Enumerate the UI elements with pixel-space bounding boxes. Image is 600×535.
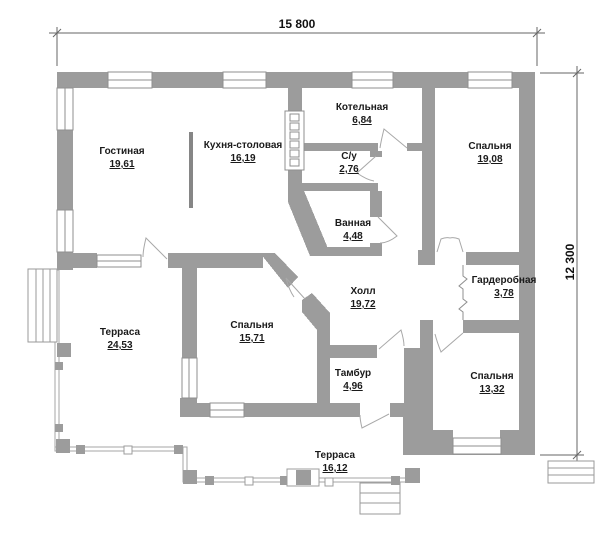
room-label-bedroom-3: Спальня 13,32	[470, 370, 513, 396]
room-label-bedroom-2: Спальня 15,71	[230, 319, 273, 345]
dimension-width-label: 15 800	[279, 17, 316, 31]
room-label-kitchen-dining: Кухня-столовая 16,19	[204, 139, 282, 165]
room-name: Гостиная	[99, 145, 144, 158]
room-area: 2,76	[339, 163, 358, 176]
kitchen-partition	[189, 132, 193, 208]
room-name: Терраса	[100, 326, 140, 339]
room-label-vestibule: Тамбур 4,96	[335, 367, 371, 393]
wardrobe-partition	[459, 265, 467, 320]
room-label-bedroom-1: Спальня 19,08	[468, 140, 511, 166]
room-name: Спальня	[468, 140, 511, 153]
room-area: 19,61	[99, 158, 144, 171]
room-area: 4,48	[335, 230, 371, 243]
floor-plan-drawing	[0, 0, 600, 535]
room-name: Спальня	[230, 319, 273, 332]
room-area: 19,08	[468, 153, 511, 166]
room-label-wardrobe: Гардеробная 3,78	[472, 274, 537, 300]
room-area: 15,71	[230, 332, 273, 345]
room-label-boiler-room: Котельная 6,84	[336, 101, 388, 127]
room-name: Спальня	[470, 370, 513, 383]
room-label-hall: Холл 19,72	[350, 285, 375, 311]
room-area: 13,32	[470, 383, 513, 396]
room-label-wc: С/у 2,76	[339, 150, 358, 176]
floor-plan: 15 800 12 300 Гостиная 19,61 Кухня-столо…	[0, 0, 600, 535]
dimension-height-label: 12 300	[563, 244, 577, 281]
room-area: 3,78	[472, 287, 537, 300]
room-label-terrace-1: Терраса 24,53	[100, 326, 140, 352]
stairs-bottom	[360, 483, 400, 514]
stairs-left	[28, 269, 57, 342]
vent-block	[285, 111, 304, 170]
room-label-bathroom: Ванная 4,48	[335, 217, 371, 243]
room-area: 4,96	[335, 380, 371, 393]
room-area: 19,72	[350, 298, 375, 311]
room-name: Котельная	[336, 101, 388, 114]
room-name: Гардеробная	[472, 274, 537, 287]
stairs-right	[548, 461, 594, 483]
room-area: 6,84	[336, 114, 388, 127]
room-area: 16,19	[204, 152, 282, 165]
room-label-living-room: Гостиная 19,61	[99, 145, 144, 171]
room-area: 24,53	[100, 339, 140, 352]
room-name: Холл	[350, 285, 375, 298]
room-name: С/у	[339, 150, 358, 163]
room-label-terrace-2: Терраса 16,12	[315, 449, 355, 475]
room-name: Ванная	[335, 217, 371, 230]
room-area: 16,12	[315, 462, 355, 475]
room-name: Тамбур	[335, 367, 371, 380]
room-name: Терраса	[315, 449, 355, 462]
room-name: Кухня-столовая	[204, 139, 282, 152]
